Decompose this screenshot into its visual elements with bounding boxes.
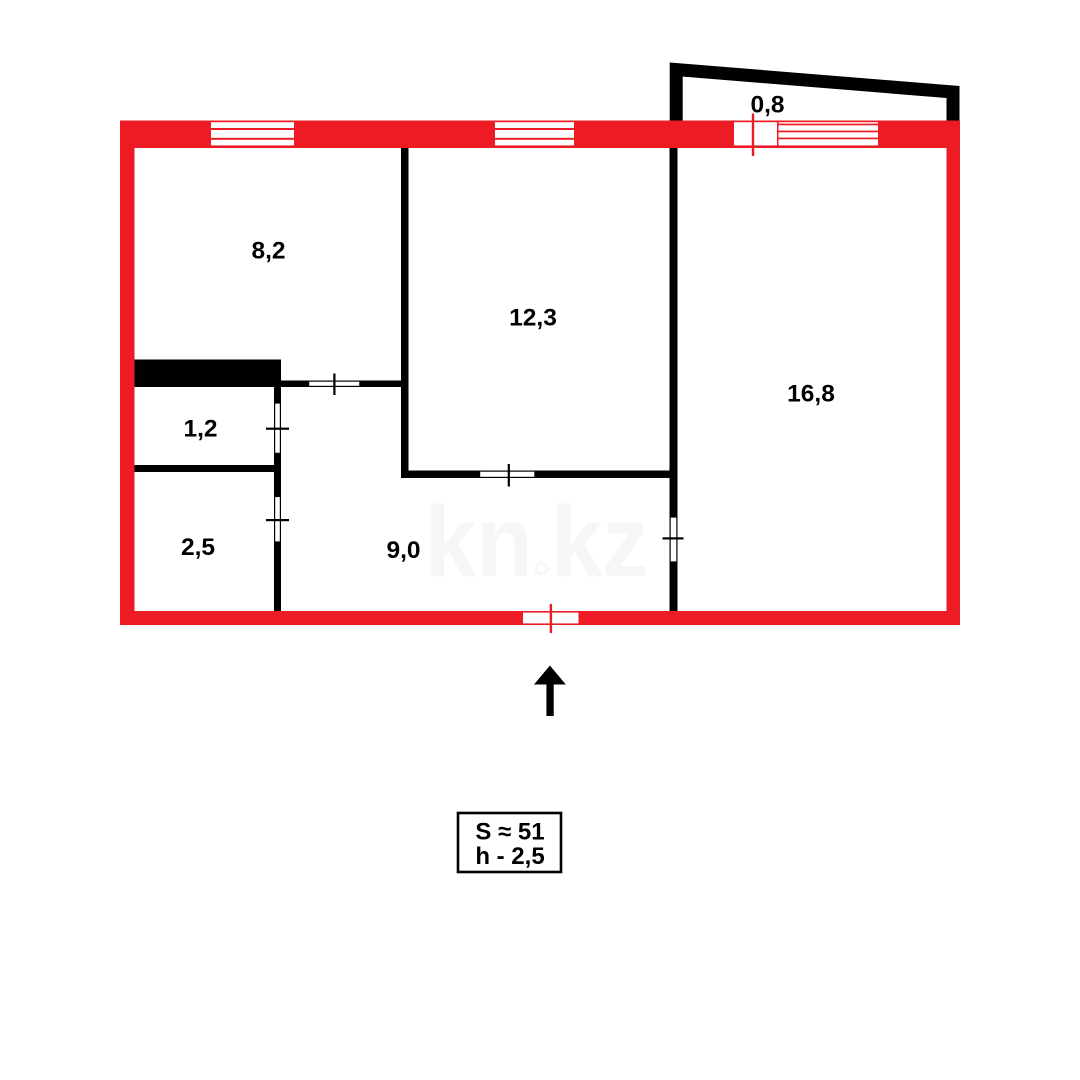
svg-text:0,8: 0,8 — [750, 92, 784, 119]
svg-text:16,8: 16,8 — [787, 381, 835, 408]
svg-text:kn: kn — [425, 487, 533, 598]
svg-text:12,3: 12,3 — [509, 305, 557, 332]
svg-text:h - 2,5: h - 2,5 — [475, 843, 544, 870]
svg-text:9,0: 9,0 — [386, 537, 420, 564]
svg-text:S ≈ 51: S ≈ 51 — [475, 819, 544, 846]
svg-text:8,2: 8,2 — [251, 237, 285, 264]
svg-text:kz: kz — [551, 487, 649, 598]
svg-text:1,2: 1,2 — [183, 416, 217, 443]
svg-text:2,5: 2,5 — [181, 534, 215, 561]
